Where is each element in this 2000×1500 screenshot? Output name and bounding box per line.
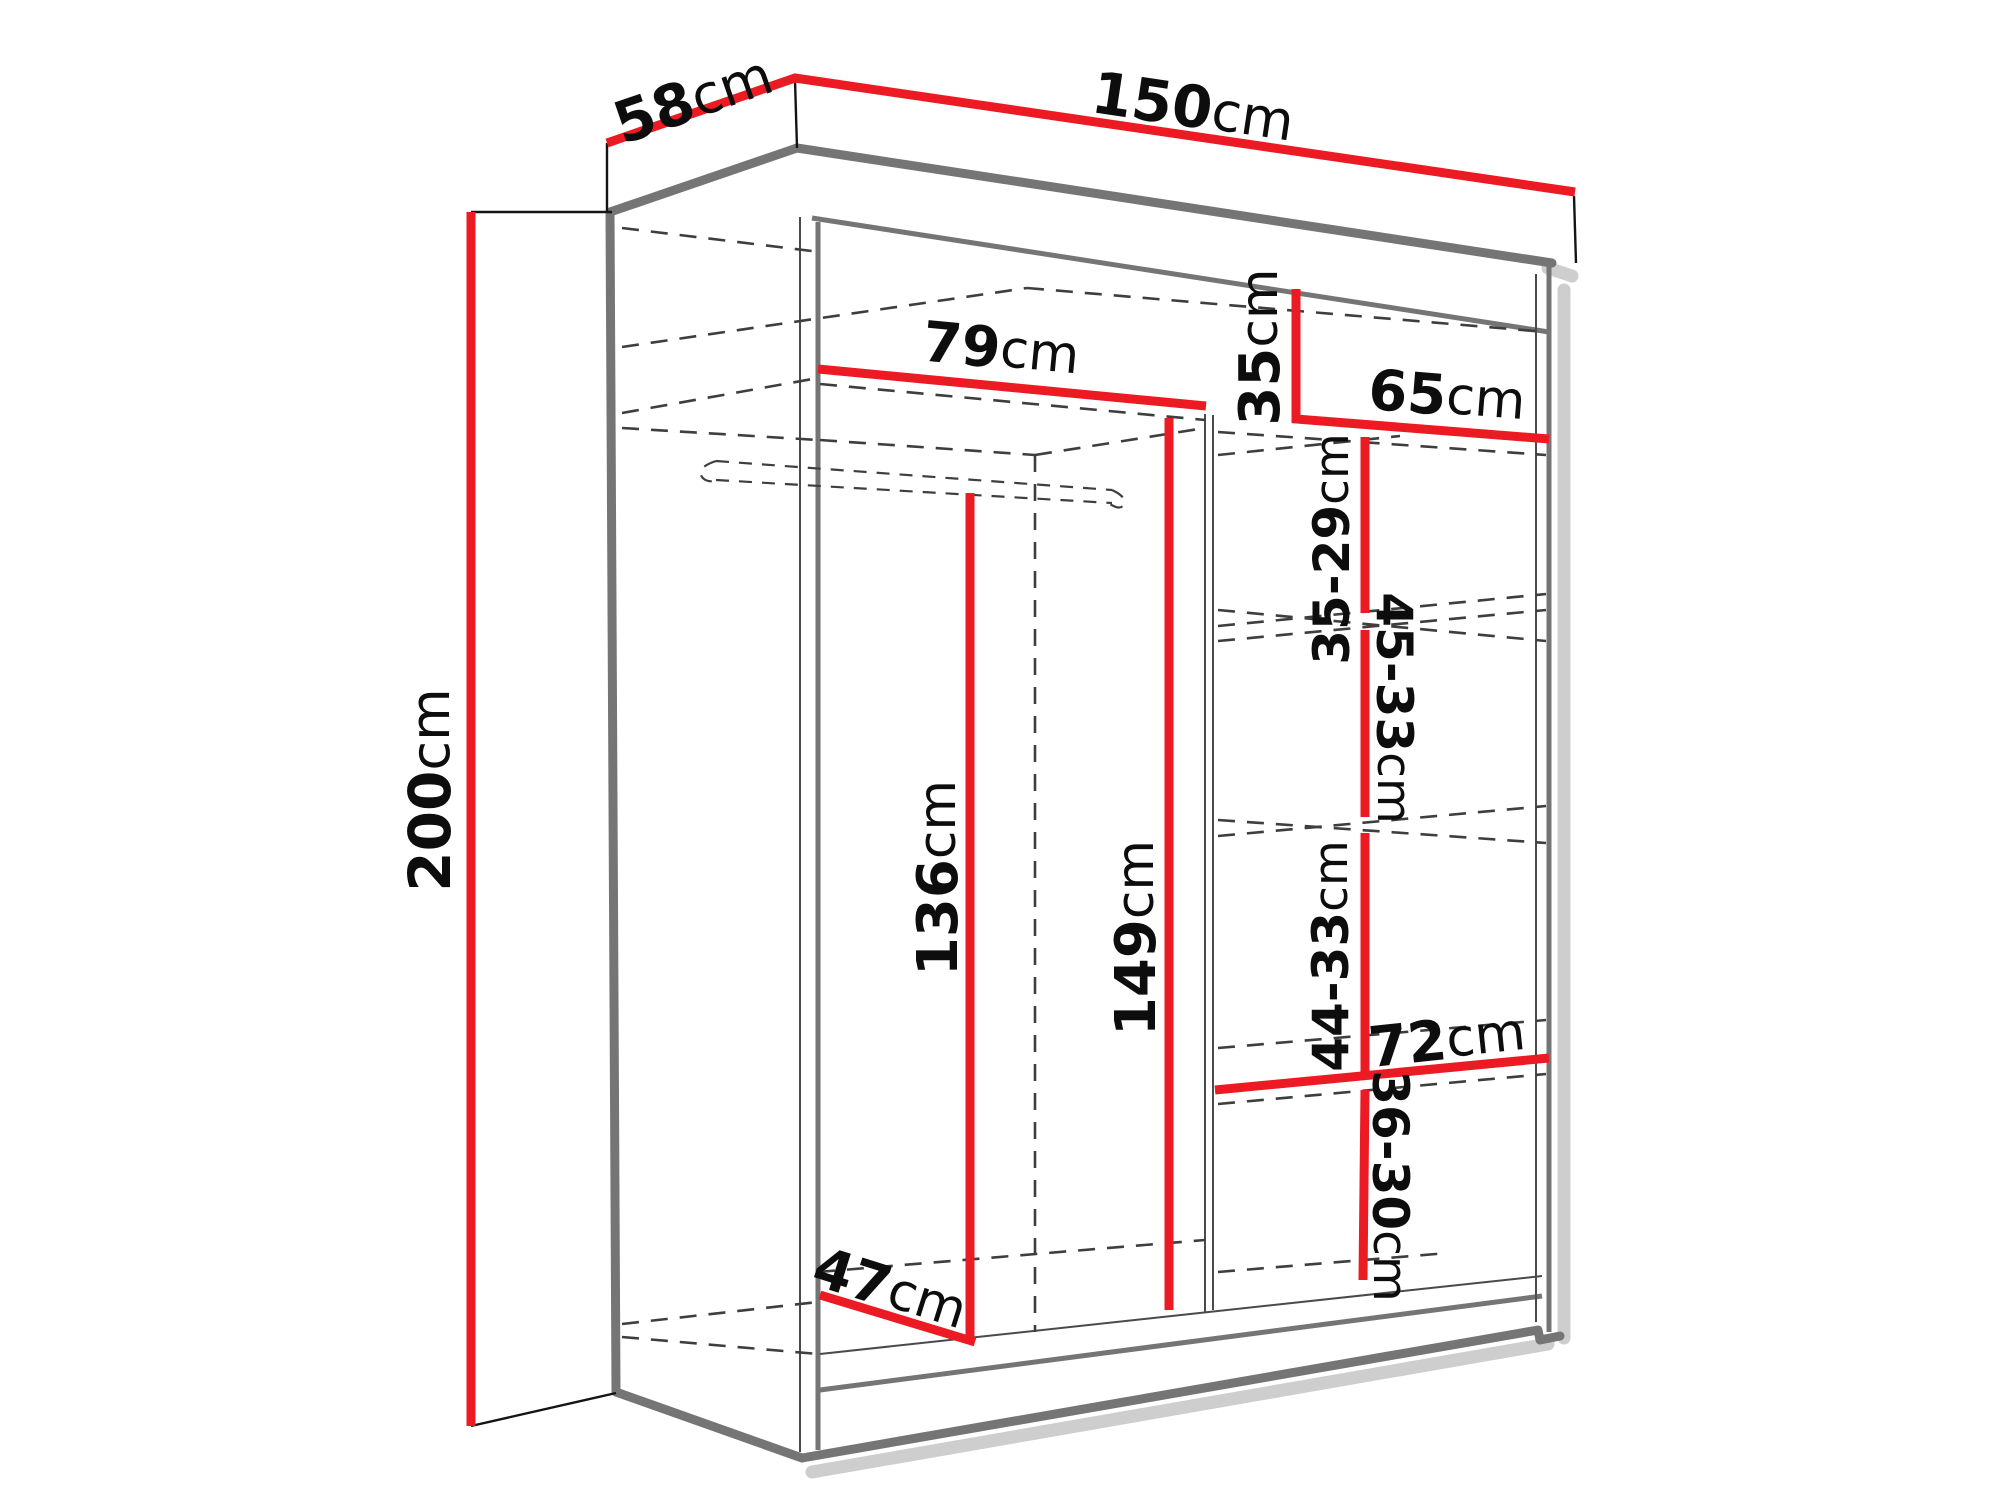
label-width: 150cm [1087,58,1298,155]
bottom-shadow [812,1344,1548,1472]
cornice-bottom-edge [812,218,1549,332]
diagram-canvas: 58cm 150cm 200cm 79cm 35cm 65cm 35-29cm … [0,0,2000,1500]
dash-back-wall-b [1035,428,1205,455]
dash-back-wall-a [820,440,1035,455]
ext-line-width [1574,196,1576,263]
label-depth: 58cm [605,40,781,157]
dash-left-panel-shelf-b [622,428,818,440]
ext-line-top-corner [795,80,797,148]
label-shelf-gap-1: 35-29cm [1303,433,1361,665]
front-top-edge [797,148,1552,263]
hanging-rail-top [716,461,1112,490]
wardrobe-dimension-diagram: 58cm 150cm 200cm 79cm 35cm 65cm 35-29cm … [0,0,2000,1500]
label-right-width: 65cm [1366,357,1528,434]
label-interior-depth: 47cm [805,1234,974,1343]
corner-shadow [1548,268,1572,276]
bottom-front-edge [802,1330,1560,1458]
dash-bottom-left-a [622,1302,818,1324]
ext-line-height-bottom [471,1393,616,1426]
hanging-rail-right-cap [1110,490,1125,508]
dash-bottom-left-b [622,1337,818,1354]
hanging-rail-bottom [716,480,1112,503]
label-height: 200cm [396,688,464,891]
label-center-height: 149cm [1104,840,1169,1036]
hanging-rail-left-cap [701,461,718,481]
label-shelf-gap-3: 44-33cm [1302,840,1360,1072]
dash-left-panel-shelf-a [622,378,818,413]
label-shelf-gap-4: 36-30cm [1361,1070,1419,1302]
dash-top-left-a [622,228,820,252]
label-shelf-gap-2: 45-33cm [1365,592,1423,824]
label-hanging-height: 136cm [906,780,971,976]
label-shelf-width: 72cm [1365,999,1528,1080]
label-top-shelf-height: 35cm [1228,268,1293,425]
